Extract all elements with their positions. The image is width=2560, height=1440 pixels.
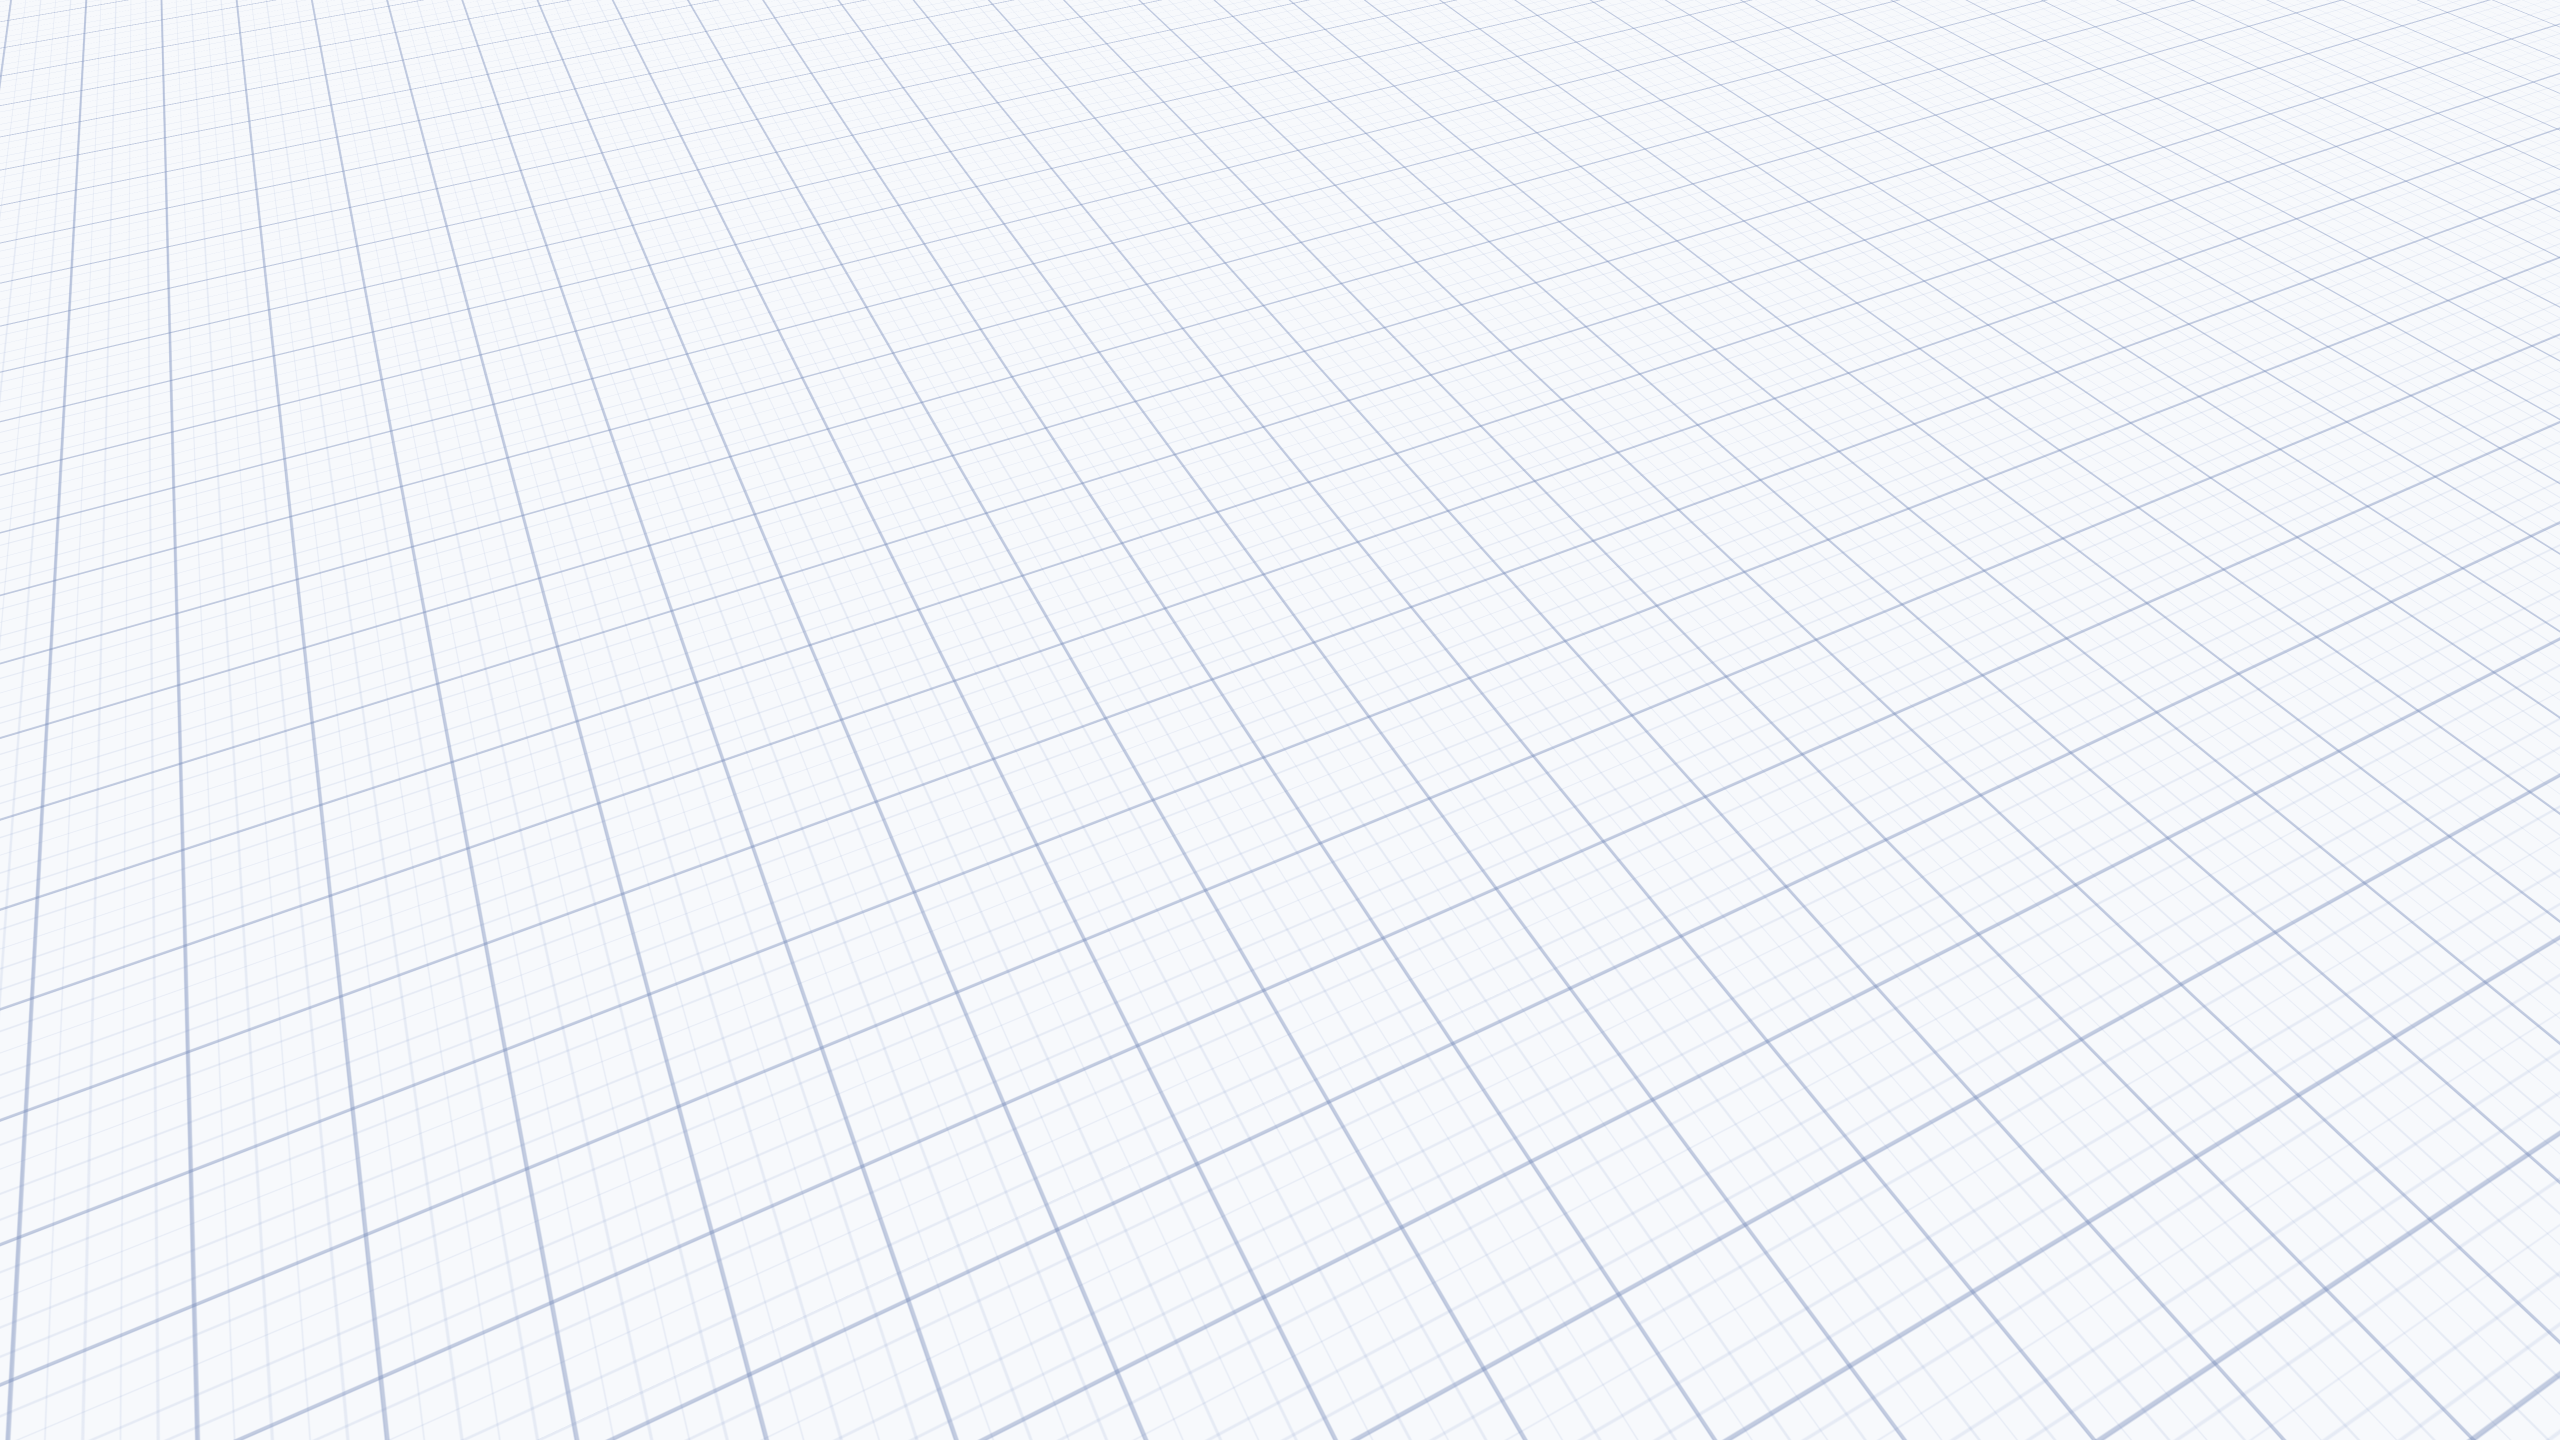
desk-plant <box>1290 512 1307 529</box>
logo-text: 5d <box>2374 1315 2490 1384</box>
green-plant-dot <box>1036 980 1054 998</box>
red-pot <box>1045 1001 1066 1022</box>
terrarium-glow-dot <box>1028 997 1041 1010</box>
watermark-brand-text: Planner <box>2106 1302 2389 1394</box>
mouse <box>1323 614 1338 628</box>
planner5d-3d-viewport[interactable]: Planner 5d <box>0 0 2560 1440</box>
floor-lamp-tubes <box>1354 865 1378 875</box>
